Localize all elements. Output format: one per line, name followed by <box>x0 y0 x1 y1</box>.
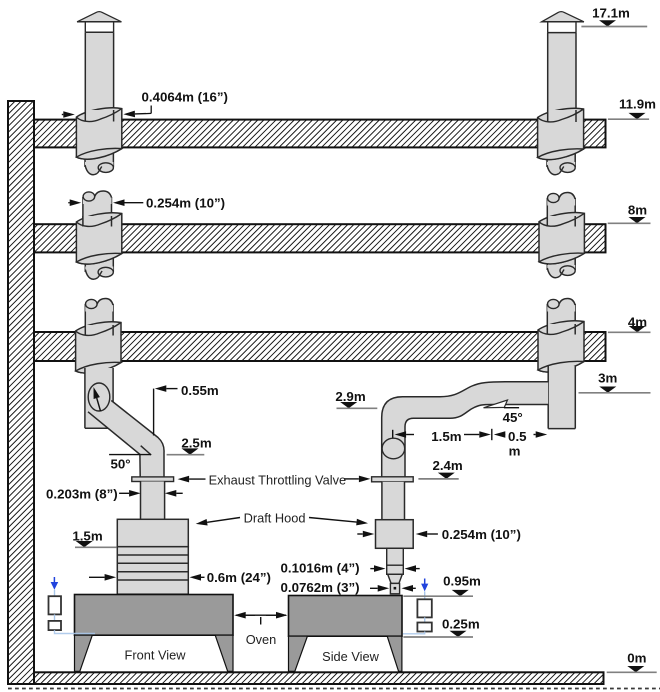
svg-text:50°: 50° <box>110 456 130 471</box>
svg-text:3m: 3m <box>598 370 617 385</box>
svg-text:0.95m: 0.95m <box>443 574 481 589</box>
svg-text:8m: 8m <box>628 203 647 218</box>
svg-text:17.1m: 17.1m <box>592 5 630 20</box>
svg-text:2.5m: 2.5m <box>181 436 211 451</box>
svg-text:1.5m: 1.5m <box>431 429 461 444</box>
svg-text:2.4m: 2.4m <box>432 458 462 473</box>
svg-text:2.9m: 2.9m <box>335 389 365 404</box>
svg-text:0.6m (24”): 0.6m (24”) <box>207 570 271 585</box>
svg-text:0.25m: 0.25m <box>442 617 480 632</box>
svg-text:0.203m (8”): 0.203m (8”) <box>46 487 118 502</box>
svg-text:0.254m (10”): 0.254m (10”) <box>146 195 225 210</box>
svg-text:11.9m: 11.9m <box>619 96 656 111</box>
svg-text:0.4064m (16”): 0.4064m (16”) <box>142 89 228 104</box>
svg-text:Side View: Side View <box>322 649 379 664</box>
svg-text:0m: 0m <box>627 651 646 666</box>
svg-text:0.5: 0.5 <box>508 429 527 444</box>
svg-text:Exhaust Throttling Valve: Exhaust Throttling Valve <box>209 473 347 488</box>
svg-text:0.1016m (4”): 0.1016m (4”) <box>281 560 360 575</box>
svg-text:45°: 45° <box>503 410 523 425</box>
svg-text:0.0762m (3”): 0.0762m (3”) <box>281 580 360 595</box>
svg-text:0.55m: 0.55m <box>181 383 219 398</box>
svg-text:Front View: Front View <box>125 648 187 663</box>
svg-text:m: m <box>509 444 521 459</box>
svg-text:0.254m (10”): 0.254m (10”) <box>442 527 521 542</box>
svg-text:Draft Hood: Draft Hood <box>244 511 306 526</box>
svg-text:Oven: Oven <box>246 632 277 647</box>
